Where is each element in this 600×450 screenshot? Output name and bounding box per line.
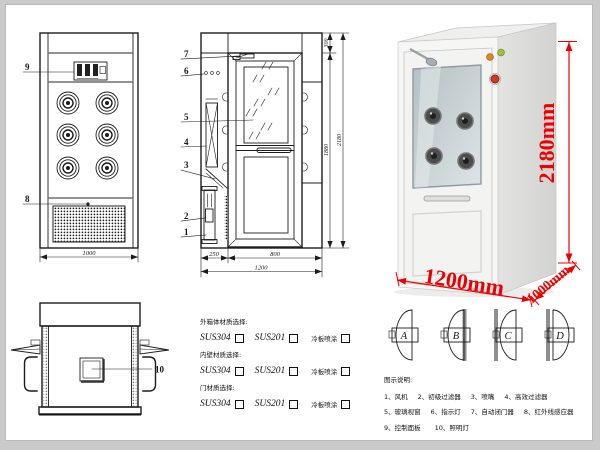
legend: 图示说明: 1、风机 2、初级过滤器 3、喷嘴 4、高效过滤器 5、玻璃视窗 6… bbox=[384, 376, 596, 432]
part-label-6: 6 bbox=[184, 66, 189, 76]
option-coldplate: 冷板喷涂 bbox=[311, 366, 337, 376]
photo-door-handle bbox=[424, 196, 470, 201]
door-edge-hatch bbox=[224, 196, 228, 240]
checkbox-sus304[interactable] bbox=[235, 334, 244, 343]
part-label-2: 2 bbox=[184, 211, 189, 221]
material-options-row: SUS304 SUS201 冷板喷涂 bbox=[200, 399, 360, 409]
option-sus304: SUS304 bbox=[200, 399, 231, 409]
legend-row: 5、玻璃视窗 6、指示灯 7、自动闭门器 8、红外线感应器 bbox=[384, 406, 596, 416]
dim-1000: 1000 bbox=[83, 250, 97, 257]
part-label-5: 5 bbox=[184, 112, 189, 122]
door-glass bbox=[244, 67, 288, 143]
door-type-c-label: C bbox=[504, 331, 512, 342]
filter-symbol bbox=[206, 99, 218, 167]
photo-height-dim: 2180mm bbox=[534, 103, 559, 184]
legend-item: 1、风机 bbox=[384, 391, 408, 401]
observation-window-symbol bbox=[80, 358, 104, 382]
part-label-4: 4 bbox=[184, 137, 189, 147]
top-label-10: 10 bbox=[155, 365, 165, 375]
legend-item: 8、红外线感应器 bbox=[524, 406, 574, 416]
legend-item: 7、自动闭门器 bbox=[471, 406, 514, 416]
dim-300: 300 bbox=[324, 39, 330, 49]
option-sus304: SUS304 bbox=[200, 366, 231, 376]
door-swing-options: A B C D bbox=[389, 309, 574, 361]
part-leaders: 7 6 5 4 3 2 1 bbox=[181, 49, 253, 237]
legend-item: 6、指示灯 bbox=[431, 406, 461, 416]
legend-title: 图示说明: bbox=[384, 376, 596, 385]
front-view-drawing: 9 8 1000 bbox=[23, 33, 138, 262]
door-type-b-label: B bbox=[453, 331, 460, 342]
indicator-lights-symbol bbox=[205, 72, 220, 75]
material-options-row: SUS304 SUS201 冷板喷涂 bbox=[200, 333, 360, 343]
option-sus201: SUS201 bbox=[255, 399, 286, 409]
wall-nozzle-bumps bbox=[223, 93, 308, 171]
door-type-a[interactable]: A bbox=[389, 310, 418, 360]
option-coldplate: 冷板喷涂 bbox=[311, 399, 337, 409]
material-section-title: 内壁材质选择: bbox=[200, 351, 360, 359]
part-label-3: 3 bbox=[184, 160, 189, 170]
door-type-d[interactable]: D bbox=[545, 309, 574, 361]
top-view-drawing: 10 bbox=[11, 303, 169, 415]
checkbox-sus304[interactable] bbox=[235, 367, 244, 376]
option-sus304: SUS304 bbox=[200, 333, 231, 343]
checkbox-coldplate[interactable] bbox=[341, 334, 350, 343]
grille-symbol bbox=[53, 206, 125, 242]
front-label-8: 8 bbox=[25, 194, 30, 204]
option-coldplate: 冷板喷涂 bbox=[311, 333, 337, 343]
leader-dot bbox=[86, 202, 89, 205]
legend-item: 3、喷嘴 bbox=[471, 391, 495, 401]
legend-item: 9、控制面板 bbox=[384, 422, 421, 432]
door-type-b[interactable]: B bbox=[441, 309, 470, 361]
left-hinge-symbol bbox=[11, 340, 40, 391]
dim-2180: 2180 bbox=[337, 134, 343, 146]
material-section-title: 外箱体材质选择: bbox=[200, 318, 360, 326]
glass-hatch bbox=[246, 62, 279, 139]
dim-250: 250 bbox=[209, 251, 220, 258]
nozzle-symbols bbox=[57, 92, 118, 179]
legend-item: 5、玻璃视窗 bbox=[384, 406, 421, 416]
legend-row: 1、风机 2、初级过滤器 3、喷嘴 4、高效过滤器 bbox=[384, 391, 596, 401]
checkbox-sus304[interactable] bbox=[235, 400, 244, 409]
section-bottom-dimensions: 250 800 1200 bbox=[201, 249, 322, 277]
option-sus201: SUS201 bbox=[255, 366, 286, 376]
dim-800: 800 bbox=[270, 251, 281, 258]
spec-sheet-page: 9 8 1000 bbox=[0, 0, 600, 450]
legend-row: 9、控制面板 10、照明灯 bbox=[384, 422, 596, 432]
legend-item: 2、初级过滤器 bbox=[418, 391, 461, 401]
control-panel-symbol bbox=[74, 62, 107, 80]
dim-1880: 1880 bbox=[324, 144, 330, 156]
checkbox-coldplate[interactable] bbox=[341, 367, 350, 376]
legend-item: 4、高效过滤器 bbox=[504, 391, 547, 401]
checkbox-coldplate[interactable] bbox=[341, 400, 350, 409]
front-width-dimension: 1000 bbox=[40, 249, 138, 262]
material-options-row: SUS304 SUS201 冷板喷涂 bbox=[200, 366, 360, 376]
door-type-d-label: D bbox=[555, 331, 564, 342]
door-type-a-label: A bbox=[400, 331, 408, 342]
legend-item: 10、照明灯 bbox=[435, 422, 469, 432]
dim-1200: 1200 bbox=[255, 265, 269, 272]
door-type-c[interactable]: C bbox=[493, 309, 522, 361]
door-closer-symbol bbox=[233, 54, 254, 60]
section-right-dimensions: 300 1880 2180 bbox=[323, 33, 349, 248]
part-label-1: 1 bbox=[184, 227, 189, 237]
checkbox-sus201[interactable] bbox=[289, 334, 298, 343]
material-section-title: 门材质选择: bbox=[200, 384, 360, 392]
checkbox-sus201[interactable] bbox=[289, 367, 298, 376]
checkbox-sus201[interactable] bbox=[289, 400, 298, 409]
product-photo: 2180mm 1200mm 1000mm bbox=[394, 23, 580, 308]
material-selection: 外箱体材质选择: SUS304 SUS201 冷板喷涂 内壁材质选择: SUS3… bbox=[200, 318, 360, 409]
option-sus201: SUS201 bbox=[255, 333, 286, 343]
part-label-7: 7 bbox=[184, 49, 189, 59]
section-view-drawing: 7 6 5 4 3 2 1 250 bbox=[181, 33, 349, 277]
front-label-9: 9 bbox=[25, 62, 30, 72]
